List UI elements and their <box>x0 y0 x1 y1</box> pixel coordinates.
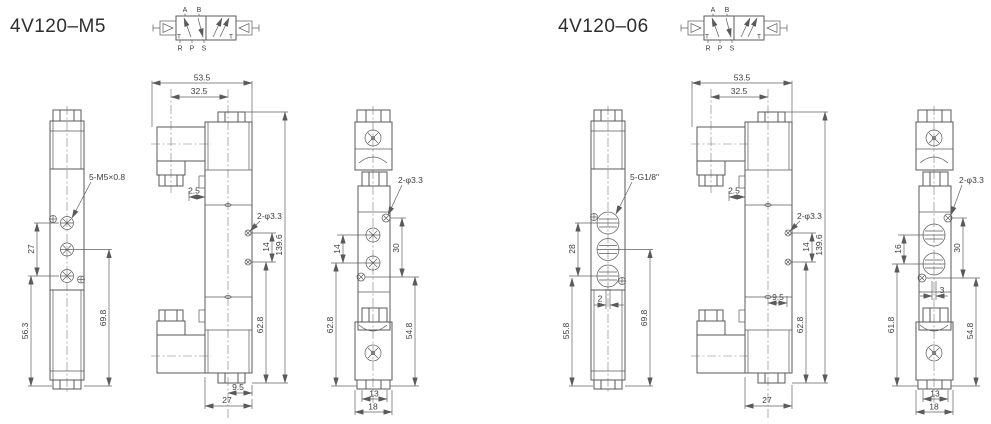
port-label-a: A <box>711 7 716 14</box>
dim-offset: 2.5 <box>728 186 740 196</box>
port-label-s: S <box>202 46 207 53</box>
valve-schematic-06: A B R P S T T <box>678 4 790 52</box>
dim-port-spacing: 14 <box>332 244 342 254</box>
thread-callout: 5-G1/8" <box>630 172 659 182</box>
dim-lower-height: 62.8 <box>255 316 265 333</box>
port-label-s: S <box>730 46 735 53</box>
dim-bottom-width: 18 <box>368 402 378 412</box>
v06-end-view: 2-φ3.3 16 61.8 30 54.8 3 13 18 <box>877 103 991 418</box>
dim-lower-height: 62.8 <box>795 316 805 333</box>
hole-callout: 2-φ3.3 <box>257 211 282 221</box>
dim-left-height: 62.8 <box>325 316 335 333</box>
exhaust-label-left: T <box>177 34 181 41</box>
dim-hole-spacing: 14 <box>261 242 271 252</box>
dim-upper-right: 30 <box>391 243 401 253</box>
valve-schematic-m5: A B R P S T T <box>150 4 262 52</box>
m5-front-view: 53.5 32.5 2.5 2-φ3.3 14 139.6 62.8 9.5 2… <box>145 73 313 421</box>
port-label-a: A <box>183 7 188 14</box>
dim-port-spacing: 27 <box>26 244 36 254</box>
dim-port-spacing: 16 <box>893 244 903 254</box>
port-label-p: P <box>718 46 723 53</box>
hole-callout: 2-φ3.3 <box>959 175 984 185</box>
dim-upper-right: 30 <box>952 243 962 253</box>
dim-right-height: 54.8 <box>965 322 975 339</box>
dim-bottom-width: 27 <box>762 395 772 405</box>
dim-hole-spacing: 14 <box>801 242 811 252</box>
dim-port-spacing: 28 <box>567 244 577 254</box>
exhaust-label-left: T <box>705 34 709 41</box>
exhaust-label-right: T <box>757 34 761 41</box>
dim-lower-height: 56.3 <box>20 322 30 339</box>
dim-bottom-inner: 9.5 <box>232 382 244 392</box>
m5-side-view: 27 56.3 69.8 5-M5×0.8 <box>15 103 145 395</box>
thread-callout: 5-M5×0.8 <box>89 172 125 182</box>
dim-inner-width: 32.5 <box>191 86 208 96</box>
dim-left-height: 61.8 <box>886 316 896 333</box>
dim-right-height: 54.8 <box>404 322 414 339</box>
exhaust-label-right: T <box>229 34 233 41</box>
m5-end-view: 2-φ3.3 14 62.8 30 54.8 13 18 <box>322 103 448 418</box>
port-label-b: B <box>725 7 730 14</box>
dim-lower-height: 55.8 <box>561 322 571 339</box>
dim-bottom-inner: 13 <box>930 389 940 399</box>
v06-front-view: 53.5 32.5 2.5 2-φ3.3 14 139.6 62.8 9.5 2… <box>685 73 853 421</box>
hole-callout: 2-φ3.3 <box>797 211 822 221</box>
model-title-06: 4V120–06 <box>558 16 649 38</box>
dim-right-height: 69.8 <box>98 309 108 326</box>
dim-total-height: 139.6 <box>814 234 824 256</box>
dim-mid-inner: 9.5 <box>772 292 784 302</box>
dim-port-offset: 3 <box>940 285 945 295</box>
dim-total-width: 53.5 <box>734 73 751 83</box>
dim-port-offset: 2 <box>598 294 603 304</box>
v06-side-view: 28 55.8 69.8 2 5-G1/8" <box>556 103 686 395</box>
dim-bottom-inner: 13 <box>369 389 379 399</box>
hole-callout: 2-φ3.3 <box>398 175 423 185</box>
port-label-r: R <box>705 46 710 53</box>
port-label-b: B <box>197 7 202 14</box>
dim-offset: 2.5 <box>188 186 200 196</box>
dim-bottom-width: 27 <box>222 395 232 405</box>
port-label-p: P <box>190 46 195 53</box>
dim-right-height: 69.8 <box>639 309 649 326</box>
dim-total-width: 53.5 <box>194 73 211 83</box>
dim-bottom-width: 18 <box>929 402 939 412</box>
port-label-r: R <box>177 46 182 53</box>
model-title-m5: 4V120–M5 <box>10 16 106 38</box>
dim-inner-width: 32.5 <box>731 86 748 96</box>
dim-total-height: 139.6 <box>274 234 284 256</box>
drawing-sheet: 4V120–M5 A B R P S T T 27 56.3 69.8 5-M5… <box>0 0 991 424</box>
